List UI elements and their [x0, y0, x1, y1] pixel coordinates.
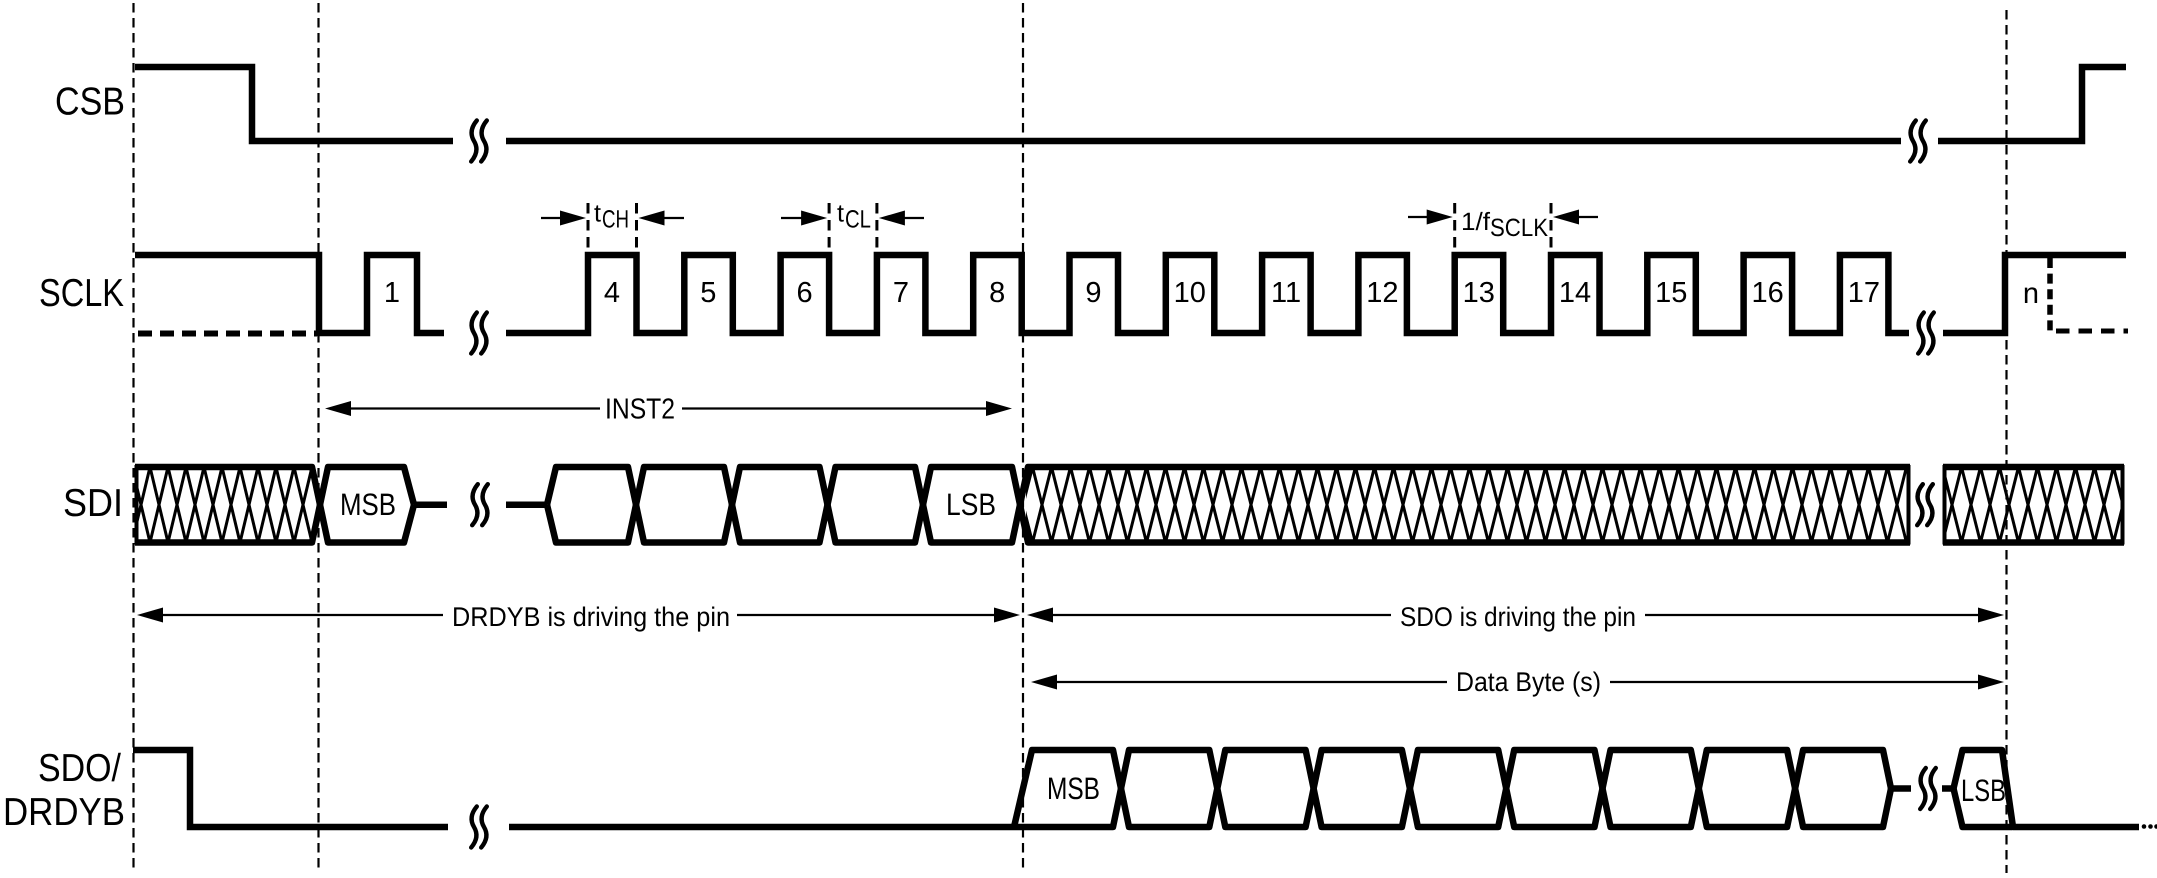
svg-text:9: 9	[1085, 277, 1101, 309]
svg-text:8: 8	[989, 277, 1005, 309]
svg-text:MSB: MSB	[340, 487, 396, 522]
svg-text:17: 17	[1848, 277, 1880, 309]
svg-text:CL: CL	[845, 206, 871, 234]
svg-text:SCLK: SCLK	[1490, 214, 1548, 242]
svg-text:1/f: 1/f	[1461, 208, 1490, 236]
svg-text:15: 15	[1655, 277, 1687, 309]
svg-text:LSB: LSB	[1961, 773, 2006, 808]
svg-text:CH: CH	[602, 206, 629, 234]
svg-text:14: 14	[1559, 277, 1591, 309]
svg-text:n: n	[2023, 278, 2039, 310]
svg-text:INST2: INST2	[605, 394, 675, 426]
svg-text:12: 12	[1366, 277, 1398, 309]
svg-text:11: 11	[1271, 277, 1301, 309]
svg-text:7: 7	[893, 277, 909, 309]
svg-text:t: t	[837, 200, 844, 228]
svg-text:SDO/: SDO/	[38, 747, 121, 790]
svg-text:16: 16	[1751, 277, 1783, 309]
svg-text:t: t	[594, 200, 601, 228]
svg-text:SDI: SDI	[63, 482, 123, 525]
svg-text:MSB: MSB	[1047, 771, 1100, 806]
svg-text:SDO is driving the pin: SDO is driving the pin	[1400, 602, 1636, 632]
svg-text:DRDYB: DRDYB	[3, 791, 125, 834]
svg-text:1: 1	[384, 277, 400, 309]
svg-text:4: 4	[604, 277, 620, 309]
svg-text:Data Byte (s): Data Byte (s)	[1456, 667, 1601, 697]
svg-text:SCLK: SCLK	[39, 272, 124, 315]
svg-text:DRDYB is driving the pin: DRDYB is driving the pin	[452, 602, 730, 632]
svg-text:5: 5	[700, 277, 716, 309]
svg-text:LSB: LSB	[946, 487, 996, 522]
svg-text:6: 6	[797, 277, 813, 309]
svg-text:10: 10	[1174, 277, 1206, 309]
svg-text:13: 13	[1463, 277, 1495, 309]
svg-text:CSB: CSB	[55, 81, 125, 124]
